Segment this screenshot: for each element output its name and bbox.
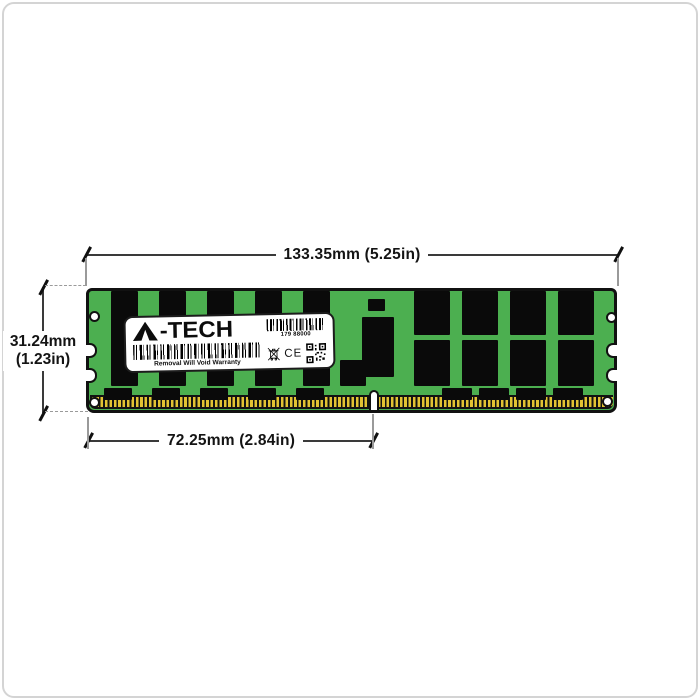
extension-line — [617, 258, 619, 286]
memory-chip — [462, 340, 498, 386]
edge-notch — [86, 368, 97, 383]
product-label: -TECH 179 88000 Removal Will Void Warran… — [123, 312, 335, 373]
key-notch — [369, 390, 379, 410]
extension-line — [45, 285, 86, 286]
brand-text: -TECH — [160, 321, 234, 340]
dimension-line — [303, 440, 374, 442]
dimension-line — [86, 254, 276, 256]
memory-chip — [558, 291, 594, 335]
dimension-bottom-label: 72.25mm (2.84in) — [159, 432, 303, 450]
dimension-top-label: 133.35mm (5.25in) — [276, 246, 429, 264]
memory-chip — [442, 388, 472, 400]
dimension-line — [428, 254, 618, 256]
dimension-line — [88, 440, 159, 442]
memory-chip — [414, 291, 450, 335]
edge-notch — [606, 343, 617, 358]
memory-chip — [414, 340, 450, 386]
qr-code-icon — [306, 342, 326, 362]
memory-chip — [516, 388, 546, 400]
weee-bin-icon — [267, 345, 280, 361]
label-bottom-row: Removal Will Void Warranty — [133, 341, 326, 368]
memory-chip — [553, 388, 583, 400]
memory-chip — [362, 317, 394, 377]
dimension-left-in: (1.23in) — [3, 351, 83, 369]
a-triangle-icon — [133, 322, 158, 342]
mounting-hole — [89, 311, 100, 322]
extension-line — [87, 417, 89, 449]
memory-chip — [368, 299, 385, 311]
dimension-bottom: 72.25mm (2.84in) — [88, 431, 374, 450]
ce-mark: CE — [284, 347, 302, 359]
dimension-left-mm: 31.24mm — [3, 333, 83, 351]
memory-chip — [510, 340, 546, 386]
dimension-top: 133.35mm (5.25in) — [86, 245, 618, 264]
barcode-icon — [267, 318, 325, 331]
barcode-icon — [133, 342, 261, 360]
mounting-hole — [602, 396, 613, 407]
warranty-text: Removal Will Void Warranty — [154, 359, 241, 368]
memory-chip — [296, 388, 324, 400]
memory-chip — [104, 388, 132, 400]
memory-chip — [248, 388, 276, 400]
serial-number: 179 88000 — [281, 331, 311, 338]
memory-chip — [479, 388, 509, 400]
memory-chip — [462, 291, 498, 335]
label-top-row: -TECH 179 88000 — [133, 318, 326, 341]
ram-dimension-diagram: 133.35mm (5.25in) 31.24mm (1.23in) 72.25… — [0, 0, 700, 700]
memory-module-pcb: -TECH 179 88000 Removal Will Void Warran… — [86, 288, 617, 413]
memory-chip — [200, 388, 228, 400]
atech-logo: -TECH — [133, 320, 234, 341]
memory-chip — [558, 340, 594, 386]
extension-line — [372, 414, 374, 449]
memory-chip — [510, 291, 546, 335]
extension-line — [85, 258, 87, 286]
serial-block: 179 88000 — [266, 318, 326, 338]
warranty-block: Removal Will Void Warranty — [133, 342, 261, 368]
dimension-left-label: 31.24mm (1.23in) — [3, 331, 83, 371]
certification-marks: CE — [267, 342, 326, 363]
edge-notch — [86, 343, 97, 358]
mounting-hole — [606, 312, 617, 323]
memory-chip — [152, 388, 180, 400]
mounting-hole — [89, 397, 100, 408]
extension-line — [45, 411, 88, 412]
edge-notch — [606, 368, 617, 383]
